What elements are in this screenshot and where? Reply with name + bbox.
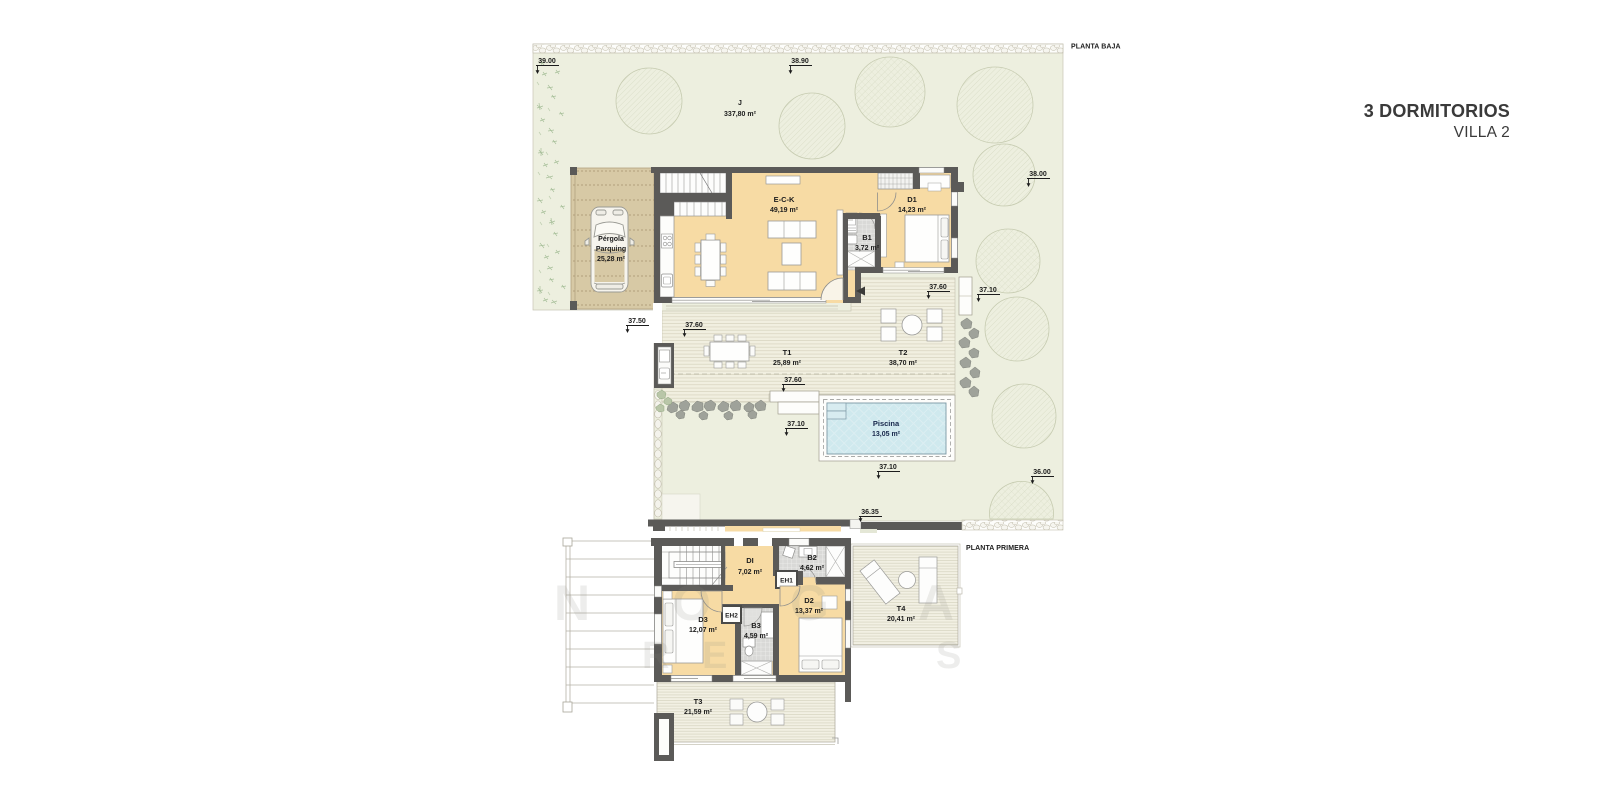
svg-text:21,59 m²: 21,59 m² — [684, 709, 713, 716]
svg-text:12,07 m²: 12,07 m² — [689, 627, 718, 634]
svg-text:Parquing: Parquing — [596, 246, 626, 253]
svg-text:36.00: 36.00 — [1033, 469, 1051, 476]
svg-text:4,59 m²: 4,59 m² — [744, 633, 769, 640]
svg-text:25,28 m²: 25,28 m² — [597, 256, 626, 263]
svg-text:T2: T2 — [899, 348, 908, 357]
svg-text:B1: B1 — [862, 233, 872, 242]
svg-text:T3: T3 — [694, 697, 703, 706]
svg-text:49,19 m²: 49,19 m² — [770, 207, 799, 214]
svg-text:4,62 m²: 4,62 m² — [800, 565, 825, 572]
svg-text:D3: D3 — [698, 615, 708, 624]
svg-text:N: N — [554, 575, 590, 631]
svg-text:R: R — [642, 635, 669, 677]
svg-text:VILLA 2: VILLA 2 — [1454, 124, 1510, 141]
svg-text:T4: T4 — [897, 604, 907, 613]
svg-text:EH2: EH2 — [725, 613, 738, 620]
svg-text:39.00: 39.00 — [538, 58, 556, 65]
svg-text:36.35: 36.35 — [861, 509, 879, 516]
svg-text:38,70 m²: 38,70 m² — [889, 360, 918, 367]
svg-text:7,02 m²: 7,02 m² — [738, 569, 763, 576]
svg-text:B3: B3 — [751, 621, 761, 630]
svg-text:PLANTA BAJA: PLANTA BAJA — [1071, 44, 1121, 51]
svg-text:J: J — [738, 100, 742, 107]
svg-text:14,23 m²: 14,23 m² — [898, 207, 927, 214]
svg-text:337,80 m²: 337,80 m² — [724, 111, 757, 118]
svg-text:D1: D1 — [907, 195, 917, 204]
svg-text:37.10: 37.10 — [979, 287, 997, 294]
svg-text:25,89 m²: 25,89 m² — [773, 360, 802, 367]
svg-text:E: E — [702, 635, 727, 677]
svg-text:37.50: 37.50 — [628, 318, 646, 325]
svg-text:38.00: 38.00 — [1029, 171, 1047, 178]
svg-text:B2: B2 — [807, 553, 817, 562]
svg-text:A: A — [918, 575, 954, 631]
svg-text:3,72 m²: 3,72 m² — [855, 245, 880, 252]
svg-text:38.90: 38.90 — [791, 58, 809, 65]
svg-text:E-C-K: E-C-K — [774, 195, 795, 204]
svg-text:PLANTA PRIMERA: PLANTA PRIMERA — [966, 545, 1029, 552]
svg-text:37.10: 37.10 — [879, 464, 897, 471]
svg-text:37.60: 37.60 — [784, 377, 802, 384]
svg-text:DI: DI — [746, 556, 754, 565]
svg-text:37.10: 37.10 — [787, 421, 805, 428]
svg-text:3 DORMITORIOS: 3 DORMITORIOS — [1364, 101, 1510, 121]
svg-text:S: S — [936, 635, 961, 677]
svg-text:D2: D2 — [804, 596, 814, 605]
svg-text:37.60: 37.60 — [685, 322, 703, 329]
svg-text:13,37 m²: 13,37 m² — [795, 608, 824, 615]
svg-text:20,41 m²: 20,41 m² — [887, 616, 916, 623]
svg-text:T1: T1 — [783, 348, 792, 357]
svg-text:13,05 m²: 13,05 m² — [872, 431, 901, 438]
svg-text:37.60: 37.60 — [929, 284, 947, 291]
svg-text:Pérgola: Pérgola — [598, 236, 624, 243]
svg-text:Piscina: Piscina — [873, 419, 900, 428]
